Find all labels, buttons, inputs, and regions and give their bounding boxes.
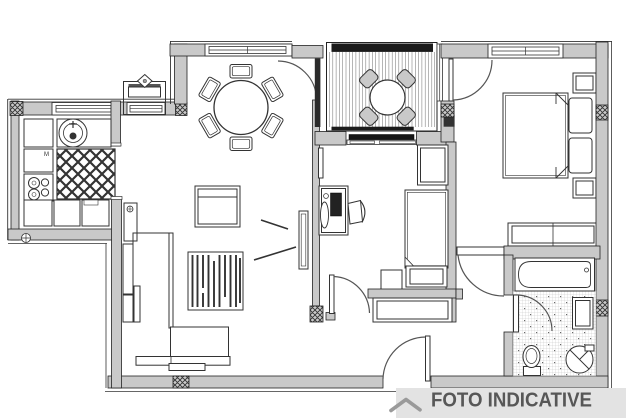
svg-text:FOTO INDICATIVE: FOTO INDICATIVE [431,389,592,412]
svg-text:M: M [44,152,49,158]
